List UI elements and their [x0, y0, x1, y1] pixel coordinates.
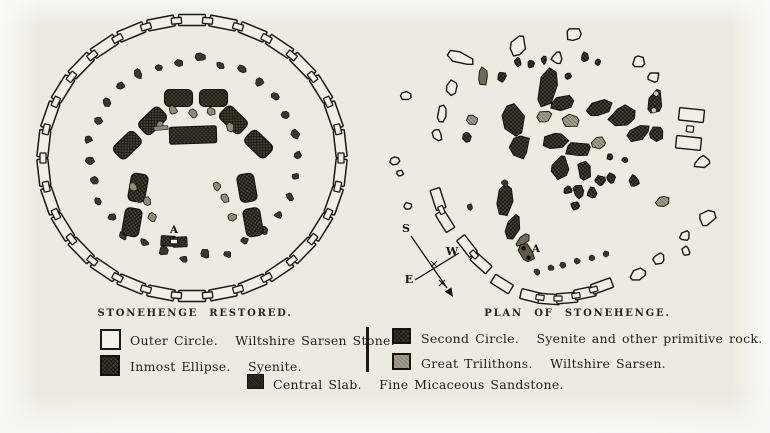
legend-label-great-trilithons: Great Trilithons. Wiltshire Sarsen.	[421, 356, 666, 372]
svg-text:E: E	[405, 273, 413, 286]
legend-swatch-great-trilithons	[392, 353, 411, 370]
svg-text:W: W	[445, 245, 459, 258]
legend-label-central-slab: Central Slab. Fine Micaceous Sandstone.	[273, 377, 564, 393]
legend-swatch-inmost-ellipse	[100, 355, 120, 376]
engraving-plate: A SWEA STONEHENGE RESTORED. PLAN OF STON…	[0, 0, 770, 433]
legend-label-outer-circle: Outer Circle. Wiltshire Sarsen Stone.	[130, 333, 395, 349]
excavation-plan-figure: SWEA	[385, 0, 770, 312]
right-figure-title: PLAN OF STONEHENGE.	[470, 308, 685, 319]
svg-text:A: A	[531, 243, 541, 255]
svg-text:S: S	[402, 222, 410, 235]
svg-text:A: A	[169, 224, 179, 236]
legend-divider	[366, 327, 369, 372]
legend-label-inmost-ellipse: Inmost Ellipse. Syenite.	[130, 359, 302, 375]
legend-swatch-second-circle	[392, 328, 411, 344]
legend-swatch-outer-circle	[100, 329, 121, 350]
restored-plan-figure: A	[20, 4, 370, 316]
left-figure-title: STONEHENGE RESTORED.	[90, 308, 300, 319]
legend-swatch-central-slab	[247, 374, 264, 389]
legend-label-second-circle: Second Circle. Syenite and other primiti…	[421, 331, 763, 347]
